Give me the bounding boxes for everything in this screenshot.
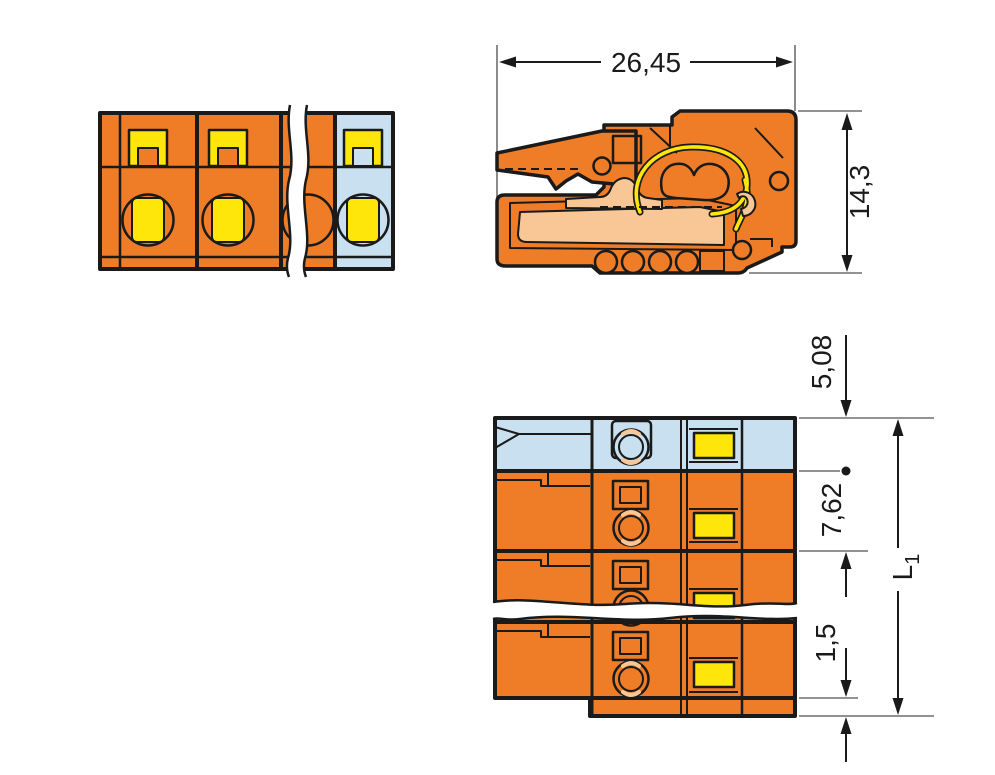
bottom-view	[493, 418, 797, 716]
front-view	[100, 105, 393, 277]
arrow-down-icon	[842, 255, 853, 272]
arrow-down-icon	[841, 680, 852, 697]
technical-drawing: 26,45 14,3 5,08 7,62 1,5	[0, 0, 995, 775]
total-length-subscript: 1	[902, 554, 924, 565]
drawing-canvas: 26,45 14,3 5,08 7,62 1,5	[0, 0, 995, 775]
total-length-symbol: L	[887, 565, 918, 581]
break-line-bottom	[493, 600, 797, 619]
marker-slot	[689, 658, 738, 692]
arrow-up-icon	[841, 552, 852, 569]
side-view	[497, 111, 796, 273]
dim-step-height-label: 1,5	[810, 624, 841, 663]
locking-lever	[497, 131, 636, 189]
arrow-up-icon	[893, 419, 904, 436]
arrow-up-icon	[841, 717, 852, 734]
conductor-entry-funnel	[518, 207, 724, 245]
arrow-down-icon	[841, 400, 852, 417]
dim-width-label: 26,45	[611, 47, 681, 78]
arrow-left-icon	[499, 57, 516, 68]
dim-end-offset: 5,08	[806, 335, 852, 476]
arrow-right-icon	[776, 57, 793, 68]
wire-opening	[614, 662, 649, 697]
dimension-dot	[842, 467, 851, 476]
push-button-end-pole	[344, 130, 382, 166]
dim-total-length-label: L1	[887, 554, 924, 581]
dim-pole-pitch: 7,62	[816, 483, 852, 597]
dim-step-height: 1,5	[810, 624, 852, 762]
dim-total-length: L1	[887, 419, 924, 715]
arrow-up-icon	[842, 113, 853, 130]
arrow-down-icon	[893, 698, 904, 715]
dim-overall-width: 26,45	[499, 47, 793, 78]
break-line-front	[287, 105, 308, 277]
dim-pole-pitch-label: 7,62	[816, 483, 847, 538]
wire-opening	[614, 511, 649, 546]
marker-slot	[689, 429, 738, 462]
push-button-pole2	[209, 130, 247, 166]
dim-height-label: 14,3	[844, 165, 875, 220]
dim-overall-height: 14,3	[842, 113, 876, 272]
dim-end-offset-label: 5,08	[806, 335, 837, 390]
bottom-step	[590, 698, 795, 716]
marker-slot	[689, 509, 738, 542]
push-button-pole1	[129, 130, 167, 166]
